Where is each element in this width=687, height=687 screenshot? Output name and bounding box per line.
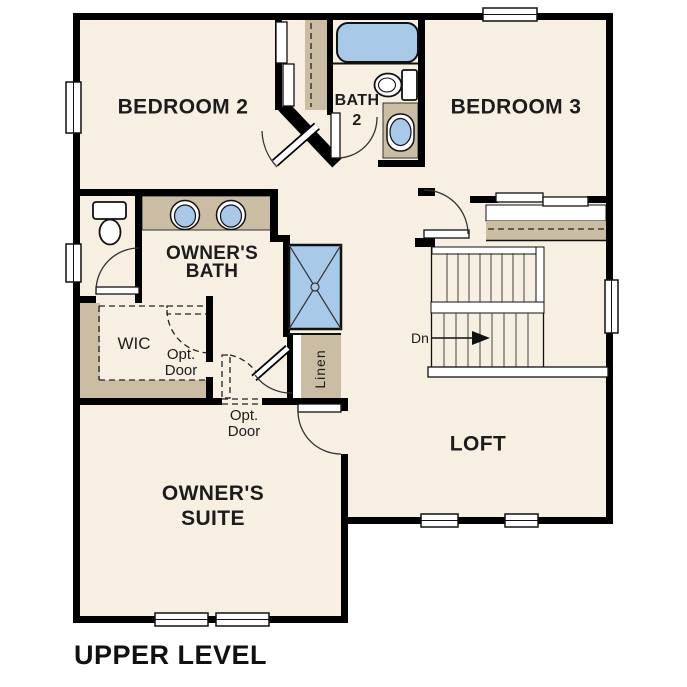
wall-suite-north-west: [73, 398, 222, 405]
stairs-landing-rail: [431, 302, 544, 313]
opt-door-upper-label: Opt. Door: [165, 347, 198, 379]
linen-shelf-edge: [293, 335, 301, 403]
wall-linen-left: [287, 333, 293, 405]
wall-exterior-bottom-loft: [341, 517, 613, 524]
bedroom2-closet-bypass-door-a: [276, 22, 287, 63]
owners-suite-door-leaf: [298, 404, 341, 412]
bathtub: [337, 23, 418, 62]
bedroom3-closet-bypass-door-b: [543, 197, 588, 206]
toilet-room-door-leaf: [96, 287, 139, 294]
bedroom3-closet-bypass-door-a: [496, 193, 543, 202]
wall-bath2-south: [378, 160, 425, 167]
wall-bath2-bedroom3: [418, 13, 425, 167]
bedroom3-label: BEDROOM 3: [451, 95, 582, 120]
wall-suite-door-jamb: [341, 398, 348, 411]
linen-label: Linen: [312, 349, 328, 388]
wall-exterior-right: [606, 13, 613, 524]
opt-door-lower-label-line1: Opt.: [228, 408, 261, 424]
loft-label: LOFT: [450, 432, 506, 457]
bedroom2-closet-shelf: [305, 20, 327, 110]
stairs-right-rail: [536, 247, 544, 307]
bedroom2-label: BEDROOM 2: [118, 95, 249, 120]
bedroom2-closet-bypass-door-b: [283, 64, 294, 106]
wall-vanity-corner: [270, 189, 278, 242]
opt-door-lower-label-line2: Door: [228, 424, 261, 440]
bath2-label-line2: 2: [335, 111, 380, 131]
bath2-label-line1: BATH: [335, 91, 380, 111]
stairs-dn-label: Dn: [411, 330, 429, 346]
wall-suite-right: [341, 454, 348, 620]
stairs-top-rail: [432, 247, 544, 254]
wall-bedroom2-closet-right: [327, 13, 333, 115]
bath2-label: BATH 2: [335, 91, 380, 131]
bath2-toilet-tank: [402, 70, 417, 100]
owners-toilet-bowl: [100, 220, 121, 245]
owners-toilet-tank: [93, 202, 126, 219]
wall-exterior-bottom-suite: [73, 616, 348, 623]
wall-toilet-room-south: [73, 296, 96, 303]
wic-label: WIC: [117, 334, 150, 354]
owners-bath-vanity: [142, 196, 272, 230]
shower-drain: [311, 283, 319, 291]
owners-suite-label: OWNER'S SUITE: [162, 481, 264, 531]
floor-plan: BEDROOM 2 BEDROOM 3 BATH 2 OWNER'S BATH …: [0, 0, 687, 687]
bedroom3-closet-shelf: [486, 221, 606, 240]
wic-shelf-bottom: [80, 380, 206, 398]
wall-bedroom2-south: [73, 189, 278, 196]
wall-bedroom3-south-a: [470, 196, 498, 203]
vanity-sink-left-bowl: [175, 205, 196, 227]
bedroom3-door-leaf: [424, 230, 469, 238]
stairs-bottom-rail: [428, 367, 608, 377]
bath2-sink-bowl: [390, 119, 411, 146]
wall-wic-right-upper: [206, 296, 213, 362]
owners-bath-label: OWNER'S BATH: [166, 245, 258, 281]
opt-door-upper-label-line1: Opt.: [165, 347, 198, 363]
vanity-sink-right-bowl: [221, 205, 242, 227]
opt-door-upper-label-line2: Door: [165, 363, 198, 379]
opt-door-lower-label: Opt. Door: [228, 408, 261, 440]
wall-bedroom3-south-b: [587, 196, 613, 203]
owners-bath-label-line2: BATH: [166, 263, 258, 281]
bedroom3-closet-floor: [486, 205, 606, 221]
wall-bedroom3-door-stub-a: [418, 188, 435, 196]
owners-suite-label-line1: OWNER'S: [162, 481, 264, 506]
page-title: UPPER LEVEL: [74, 640, 267, 671]
owners-suite-label-line2: SUITE: [162, 506, 264, 531]
wall-bedroom3-door-stub-b: [415, 238, 435, 247]
